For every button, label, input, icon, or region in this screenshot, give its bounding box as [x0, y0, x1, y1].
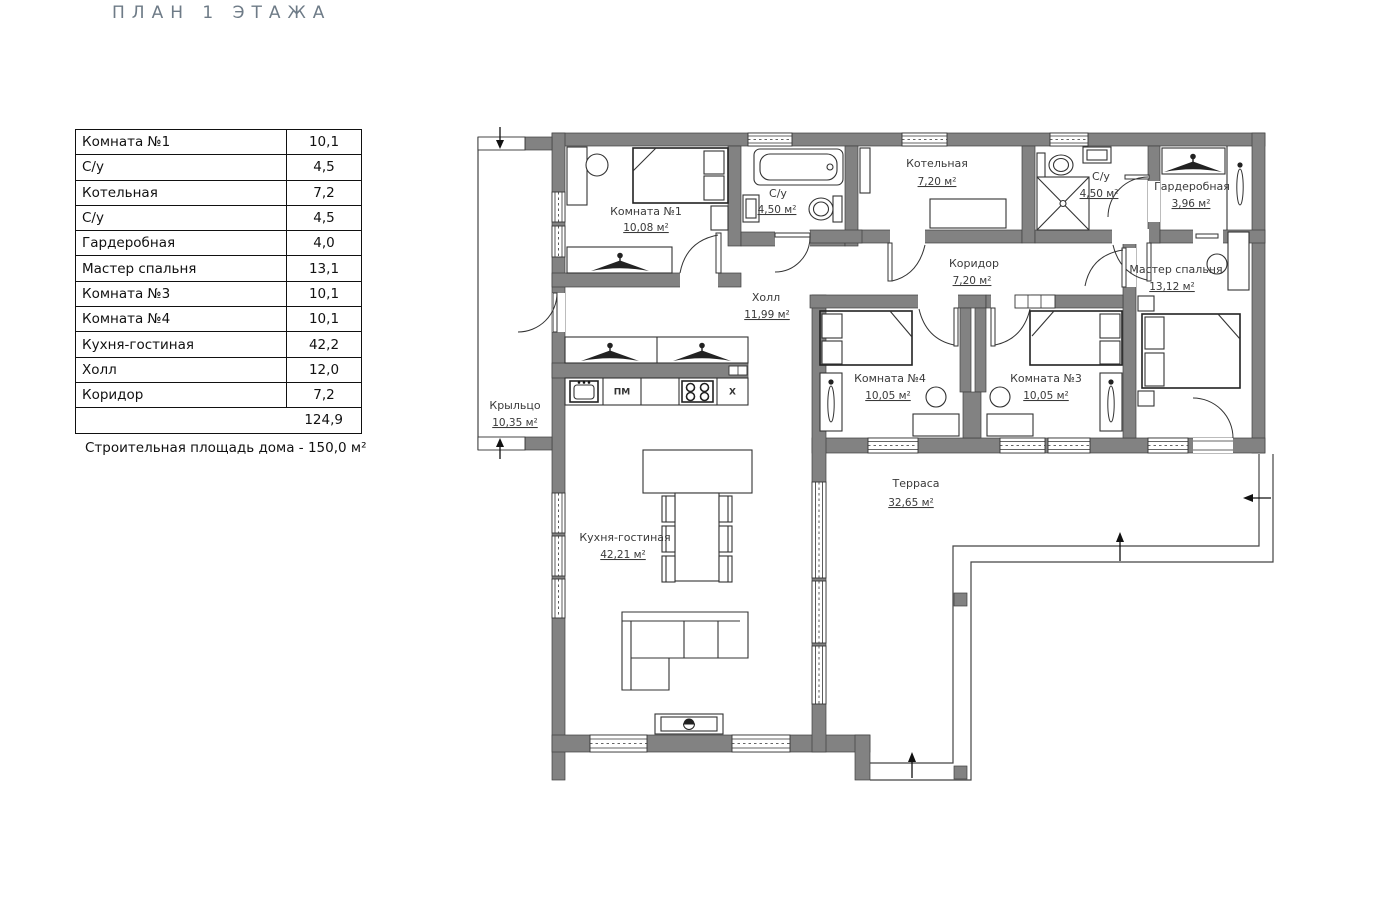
- svg-text:Холл: Холл: [752, 291, 780, 304]
- dishwasher-label: ПМ: [614, 388, 631, 398]
- svg-text:С/у: С/у: [1092, 170, 1110, 183]
- kitchen-counter: [565, 378, 748, 405]
- room-label: Гардеробная3,96 м²: [1154, 180, 1230, 210]
- svg-text:4,50 м²: 4,50 м²: [758, 204, 797, 216]
- floor-plan: ПМ Х: [470, 125, 1280, 795]
- svg-text:10,05 м²: 10,05 м²: [865, 390, 911, 402]
- svg-text:10,08 м²: 10,08 м²: [623, 222, 669, 234]
- table-row: Комната №410,1: [76, 307, 362, 332]
- terrace-arrow-up-2: [908, 752, 916, 778]
- svg-text:Комната №4: Комната №4: [854, 372, 926, 385]
- table-row: Комната №310,1: [76, 281, 362, 306]
- table-row: Гардеробная4,0: [76, 231, 362, 256]
- svg-text:4,50 м²: 4,50 м²: [1080, 188, 1119, 200]
- table-row: Холл12,0: [76, 357, 362, 382]
- fridge-label: Х: [729, 388, 736, 398]
- svg-text:С/у: С/у: [769, 187, 787, 200]
- svg-text:Терраса: Терраса: [892, 477, 940, 490]
- table-row: Кухня-гостиная42,2: [76, 332, 362, 357]
- svg-text:Комната №3: Комната №3: [1010, 372, 1082, 385]
- svg-text:Крыльцо: Крыльцо: [489, 399, 540, 412]
- svg-text:7,20 м²: 7,20 м²: [953, 275, 992, 287]
- toilet: [833, 196, 842, 222]
- svg-text:42,21 м²: 42,21 м²: [600, 549, 646, 561]
- svg-text:Комната №1: Комната №1: [610, 205, 682, 218]
- table-total-row: 124,9: [76, 408, 362, 433]
- room-label: Холл11,99 м²: [744, 291, 790, 321]
- page-title: ПЛАН 1 ЭТАЖА: [112, 3, 331, 23]
- svg-text:11,99 м²: 11,99 м²: [744, 309, 790, 321]
- room-label: С/у4,50 м²: [758, 187, 797, 216]
- svg-text:7,20 м²: 7,20 м²: [918, 176, 957, 188]
- room-label: Коридор7,20 м²: [949, 257, 999, 287]
- table-row: Коридор7,2: [76, 382, 362, 407]
- svg-text:3,96 м²: 3,96 м²: [1172, 198, 1211, 210]
- svg-text:32,65 м²: 32,65 м²: [888, 497, 934, 509]
- room-label: Крыльцо10,35 м²: [489, 399, 540, 429]
- room-label: Мастер спальня13,12 м²: [1129, 263, 1222, 293]
- toilet: [1037, 153, 1045, 178]
- floor-plan-page: ПЛАН 1 ЭТАЖА Комната №110,1 С/у4,5 Котел…: [0, 0, 1380, 923]
- room-label: Комната №110,08 м²: [610, 205, 682, 234]
- room-label: Комната №310,05 м²: [1010, 372, 1082, 402]
- dining-table: [675, 493, 719, 581]
- table-row: Мастер спальня13,1: [76, 256, 362, 281]
- area-table: Комната №110,1 С/у4,5 Котельная7,2 С/у4,…: [75, 129, 362, 434]
- room-label: Комната №410,05 м²: [854, 372, 926, 402]
- table-row: Комната №110,1: [76, 130, 362, 155]
- sofa: [622, 612, 748, 690]
- shower: [1037, 177, 1089, 230]
- svg-text:Мастер спальня: Мастер спальня: [1129, 263, 1222, 276]
- svg-text:13,12 м²: 13,12 м²: [1149, 281, 1195, 293]
- table-row: С/у4,5: [76, 205, 362, 230]
- svg-text:Котельная: Котельная: [906, 157, 968, 170]
- room-label: Кухня-гостиная42,21 м²: [579, 531, 670, 561]
- total-area-note: Строительная площадь дома - 150,0 м²: [85, 440, 366, 456]
- svg-text:Коридор: Коридор: [949, 257, 999, 270]
- svg-text:Гардеробная: Гардеробная: [1154, 180, 1230, 193]
- terrace-arrow-left: [1243, 494, 1271, 502]
- svg-text:10,35 м²: 10,35 м²: [492, 417, 538, 429]
- table-row: Котельная7,2: [76, 180, 362, 205]
- room-label: Терраса32,65 м²: [888, 477, 939, 509]
- table-row: С/у4,5: [76, 155, 362, 180]
- svg-text:Кухня-гостиная: Кухня-гостиная: [579, 531, 670, 544]
- svg-text:10,05 м²: 10,05 м²: [1023, 390, 1069, 402]
- room-label: Котельная7,20 м²: [906, 157, 968, 188]
- kitchen-island: [643, 450, 752, 493]
- tv-stand: [655, 714, 723, 734]
- master-bedroom-furniture: [1138, 232, 1249, 406]
